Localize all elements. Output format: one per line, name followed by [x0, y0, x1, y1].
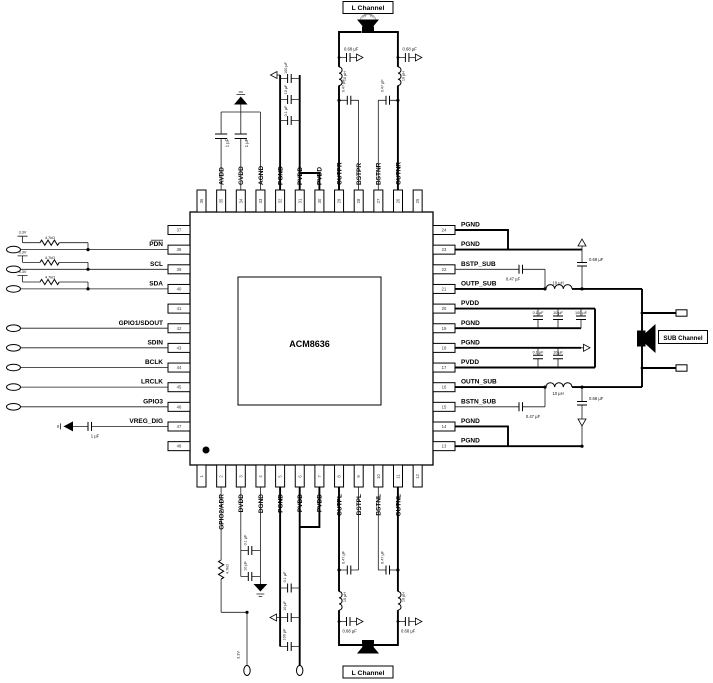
connector-icon — [244, 666, 250, 676]
power-arrow-icon — [578, 239, 586, 246]
pin-number: 14 — [442, 424, 447, 429]
inductor-icon — [398, 67, 401, 86]
channel-label: L Channel — [352, 670, 385, 677]
pin-label: GPIO3 — [143, 398, 163, 405]
pin-number: 44 — [177, 365, 182, 370]
pin-label: GPIO1/SDOUT — [119, 320, 163, 327]
pin-label: PDN — [149, 241, 163, 248]
pin-number: 27 — [376, 198, 381, 203]
connector-icon — [7, 345, 21, 352]
resistor-icon — [219, 560, 224, 579]
voltage-label: 3.3V — [237, 651, 241, 659]
pin-number: 12 — [415, 474, 420, 479]
pin-label: PGND — [461, 222, 480, 229]
pin-label: OUTN_SUB — [461, 379, 497, 386]
cap-value: 0.68 µF — [403, 47, 418, 52]
pin-number: 22 — [442, 267, 447, 272]
capacitor-icon — [88, 422, 92, 431]
cap-value: 0.1 µF — [243, 534, 247, 546]
cap-value: 10 µF — [553, 351, 563, 355]
pin-label: BSTNL — [376, 494, 383, 516]
cap-value: 0.68 µF — [343, 629, 358, 634]
pin-number: 40 — [177, 286, 182, 291]
chip-body: ACM8636 — [190, 212, 433, 465]
inductor-value: 10 µH — [402, 592, 406, 602]
pin-number: 48 — [177, 444, 182, 449]
cap-value: 0.68 µF — [589, 396, 604, 401]
cap-value: 10 µF — [243, 560, 247, 570]
pin-number: 35 — [219, 198, 224, 203]
power-arrow-icon — [270, 614, 277, 621]
scl-net: 3.3V 4.7kΩ — [7, 250, 169, 272]
resistor-icon — [40, 240, 59, 245]
speaker-icon — [357, 14, 379, 33]
cap-value: 10 µF — [284, 84, 288, 94]
pin-label: DVDD — [238, 494, 245, 513]
pin-label: BSTP_SUB — [461, 261, 496, 268]
bottom-pvdd-decoupling: 0.1 µF 10 µF 100 µF — [270, 487, 319, 676]
pin-label: DGND — [258, 494, 265, 513]
pin-label: SDIN — [147, 339, 163, 346]
pin-label: PGND — [461, 320, 480, 327]
cap-value: 0.1 µF — [284, 105, 288, 117]
pin-number: 41 — [177, 306, 182, 311]
pin-label: SDA — [149, 280, 163, 287]
pin-number: 33 — [258, 198, 263, 203]
resistor-value: 4.7kΩ — [226, 564, 230, 574]
power-arrow-icon — [415, 618, 422, 625]
pin-number: 38 — [177, 247, 182, 252]
resistor-value: 4.7kΩ — [45, 256, 55, 260]
cap-value: 1 µF — [91, 434, 100, 439]
resistor-value: 4.7kΩ — [45, 236, 55, 240]
inductor-value: 10 µH — [552, 391, 563, 396]
capacitor-icon — [288, 74, 292, 125]
voltage-label: 3.3V — [19, 270, 27, 274]
pin-number: 34 — [238, 198, 243, 203]
pin-number: 20 — [442, 306, 447, 311]
cap-value: 0.47 µF — [380, 550, 384, 564]
pin-label: PGND — [461, 418, 480, 425]
resistor-icon — [40, 279, 59, 284]
capacitor-icon — [248, 546, 252, 581]
pin-label: BSTPL — [356, 494, 363, 515]
pin-label: PGND — [461, 438, 480, 445]
cap-value: 0.47 µF — [342, 550, 346, 564]
cap-value: 0.68 µF — [401, 629, 416, 634]
pin-number: 17 — [442, 365, 447, 370]
cap-value: 0.47 µF — [506, 277, 521, 282]
pin-number: 13 — [442, 444, 447, 449]
pin-number: 25 — [415, 198, 420, 203]
sda-net: 3.3V 4.7kΩ — [7, 270, 169, 292]
cap-value: 0.1 µF — [533, 351, 545, 355]
connector-icon — [7, 364, 21, 371]
connector-icon — [7, 286, 21, 293]
power-arrow-icon — [357, 54, 364, 61]
pin-number: 23 — [442, 247, 447, 252]
top-speaker: L Channel — [343, 2, 393, 34]
pin-label: PGND — [461, 339, 480, 346]
connector-icon — [7, 404, 21, 411]
cap-value: 10 µF — [553, 311, 563, 315]
pin-number: 19 — [442, 326, 447, 331]
power-arrow-icon — [578, 419, 586, 426]
cap-value: 100 µF — [284, 61, 288, 74]
pin-label: AGND — [258, 166, 265, 185]
connector-icon — [297, 666, 303, 676]
connector-icon — [7, 384, 21, 391]
pin-label: PVDD — [461, 359, 479, 366]
inductor-icon — [398, 592, 401, 611]
cap-value: 0.47 µF — [342, 79, 346, 93]
pin-number: 45 — [177, 385, 182, 390]
pin-number: 24 — [442, 228, 447, 233]
pin-number: 31 — [297, 198, 302, 203]
channel-label: SUB Channel — [663, 335, 702, 342]
inductor-icon — [546, 383, 572, 387]
capacitor-icon — [215, 134, 247, 139]
schematic-canvas: ACM8636 3635AVDD34GVDD33AGND32PGND31PVDD… — [0, 0, 713, 683]
pin-label: SCL — [150, 261, 163, 268]
inductor-icon — [339, 592, 342, 611]
connector-icon — [676, 310, 687, 316]
pin-label: PGND — [461, 241, 480, 248]
pin-number: 42 — [177, 326, 182, 331]
pin-number: 43 — [177, 345, 182, 350]
pin-label: OUTP_SUB — [461, 280, 497, 287]
capacitor-icon — [288, 584, 292, 652]
pin-number: 10 — [376, 474, 381, 479]
pin-number: 11 — [396, 474, 401, 479]
pin-number: 15 — [442, 404, 447, 409]
inductor-value: 10 µH — [343, 592, 347, 602]
inductor-value: 10 µH — [402, 71, 406, 81]
pin-label: BSTPR — [356, 163, 363, 185]
pin-number: 16 — [442, 385, 447, 390]
pin-label: GPIO2/ADR — [218, 494, 225, 530]
pin-label: BCLK — [145, 359, 163, 366]
pdn-net: 3.3V 4.7kΩ — [7, 231, 169, 253]
cap-value: 100 µF — [283, 628, 287, 641]
capacitor-icon — [347, 566, 409, 627]
pin-number: 28 — [356, 198, 361, 203]
connector-icon — [7, 325, 21, 332]
connector-icon — [676, 365, 687, 371]
pin-label: LRCLK — [141, 379, 163, 386]
digital-audio-nets — [7, 325, 169, 410]
pin-number: 47 — [177, 424, 182, 429]
cap-value: 0.68 µF — [589, 257, 604, 262]
voltage-label: 3.3V — [19, 231, 27, 235]
pin-label: BSTNR — [376, 162, 383, 185]
voltage-label: 3.3V — [19, 250, 27, 254]
chip-name: ACM8636 — [289, 339, 330, 349]
pin-number: 37 — [177, 228, 182, 233]
pin-number: 36 — [199, 198, 204, 203]
pin-number: 32 — [278, 198, 283, 203]
power-arrow-icon — [357, 618, 364, 625]
power-arrow-icon — [415, 54, 422, 61]
speaker-icon — [357, 640, 379, 654]
ground-icon — [254, 584, 268, 597]
channel-label: L Channel — [352, 5, 385, 12]
cap-value: 0.47 µF — [380, 79, 384, 93]
schematic: ACM8636 3635AVDD34GVDD33AGND32PGND31PVDD… — [0, 0, 713, 683]
cap-value: 1 µF — [244, 138, 249, 147]
cap-value: 1 µF — [225, 138, 230, 147]
speaker-icon — [637, 324, 656, 353]
pin-label: BSTN_SUB — [461, 398, 496, 405]
resistor-value: 4.7kΩ — [45, 276, 55, 280]
ground-icon — [58, 421, 73, 431]
pin-label: PVDD — [461, 300, 479, 307]
resistor-icon — [40, 260, 59, 265]
power-arrow-icon — [271, 72, 278, 79]
pin-label: GVDD — [238, 166, 245, 185]
pin-number: 30 — [317, 198, 322, 203]
pin-number: 29 — [337, 198, 342, 203]
pin-label: AVDD — [218, 167, 225, 185]
pin-number: 18 — [442, 345, 447, 350]
cap-value: 10 µF — [283, 600, 287, 610]
capacitor-icon — [519, 265, 523, 412]
pin1-marker — [203, 447, 210, 454]
cap-value: 0.47 µF — [526, 414, 541, 419]
pin-number: 26 — [396, 198, 401, 203]
left-control-signals: 3.3V 4.7kΩ 3.3V 4.7kΩ 3.3V 4.7kΩ — [7, 231, 169, 439]
agnd-ground-icon — [234, 92, 248, 112]
cap-value: 100 µF — [575, 311, 588, 315]
cap-value: 0.1 µF — [533, 311, 545, 315]
power-arrow-icon — [584, 344, 591, 351]
pin-label: VREG_DIG — [129, 418, 163, 425]
pin-number: 46 — [177, 404, 182, 409]
pin-number: 21 — [442, 286, 447, 291]
cap-value: 0.68 µF — [344, 47, 359, 52]
cap-value: 0.1 µF — [283, 571, 287, 583]
inductor-value: 10 µH — [552, 281, 563, 286]
pin-number: 39 — [177, 267, 182, 272]
